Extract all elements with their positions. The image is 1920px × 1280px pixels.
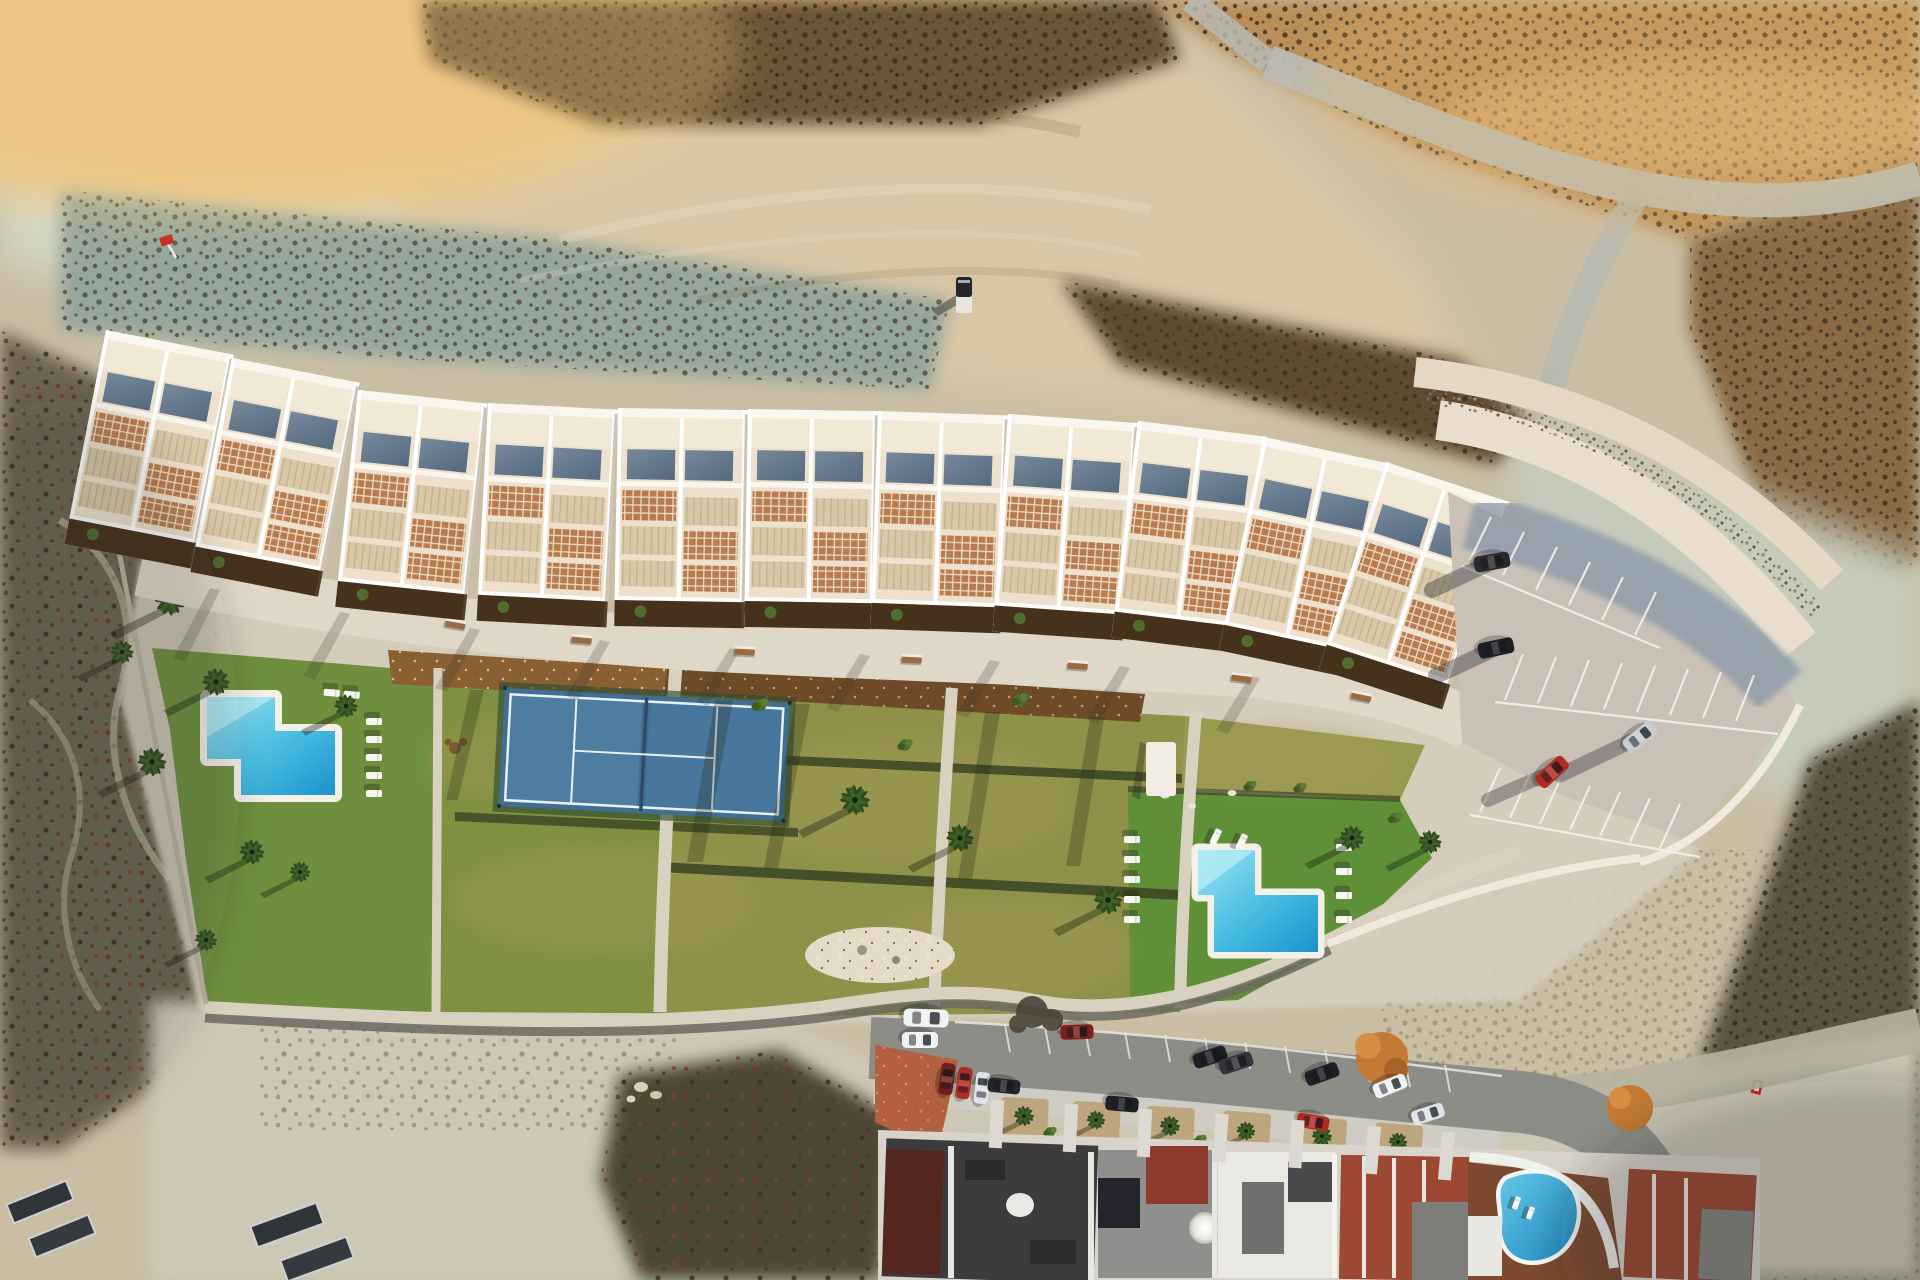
- pool-house: [1468, 1216, 1502, 1276]
- terracotta-roof: [1146, 1146, 1208, 1204]
- aerial-photo: [0, 0, 1920, 1280]
- house-block-three: [1218, 1152, 1337, 1278]
- townhouse-module: [870, 411, 1008, 633]
- dark-blue-roof: [1098, 1178, 1140, 1228]
- townhouse-module: [477, 403, 618, 628]
- house-block-dark: [882, 1138, 1099, 1280]
- light-rock: [627, 1096, 636, 1103]
- orange-tree: [1607, 1085, 1653, 1131]
- light-rock: [650, 1091, 662, 1099]
- townhouse-module: [335, 390, 487, 620]
- light-rock: [634, 1082, 648, 1092]
- scene-canvas: [0, 0, 1920, 1280]
- house-block-two: [1098, 1146, 1221, 1278]
- roof-vent: [1006, 1193, 1034, 1217]
- townhouse-module: [744, 409, 878, 629]
- house-block-five: [1623, 1169, 1756, 1280]
- community-pool: [1498, 1171, 1579, 1263]
- truck-bed: [956, 296, 972, 313]
- townhouse-module: [614, 408, 748, 628]
- padel-court: [493, 682, 796, 827]
